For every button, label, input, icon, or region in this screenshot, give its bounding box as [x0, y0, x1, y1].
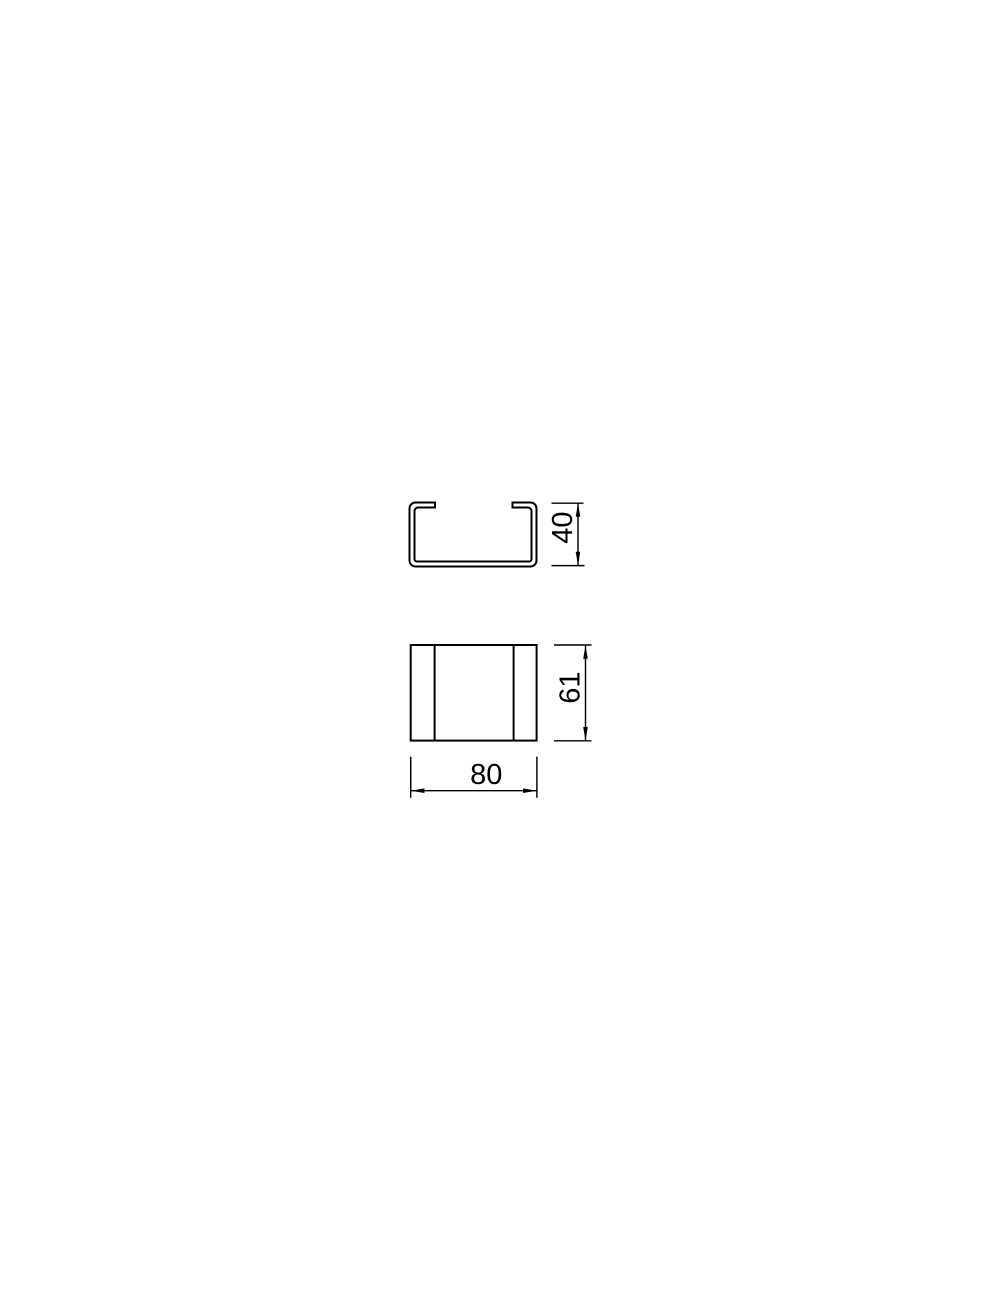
svg-text:80: 80 — [470, 759, 502, 791]
svg-text:61: 61 — [555, 671, 587, 703]
svg-text:40: 40 — [547, 511, 579, 543]
